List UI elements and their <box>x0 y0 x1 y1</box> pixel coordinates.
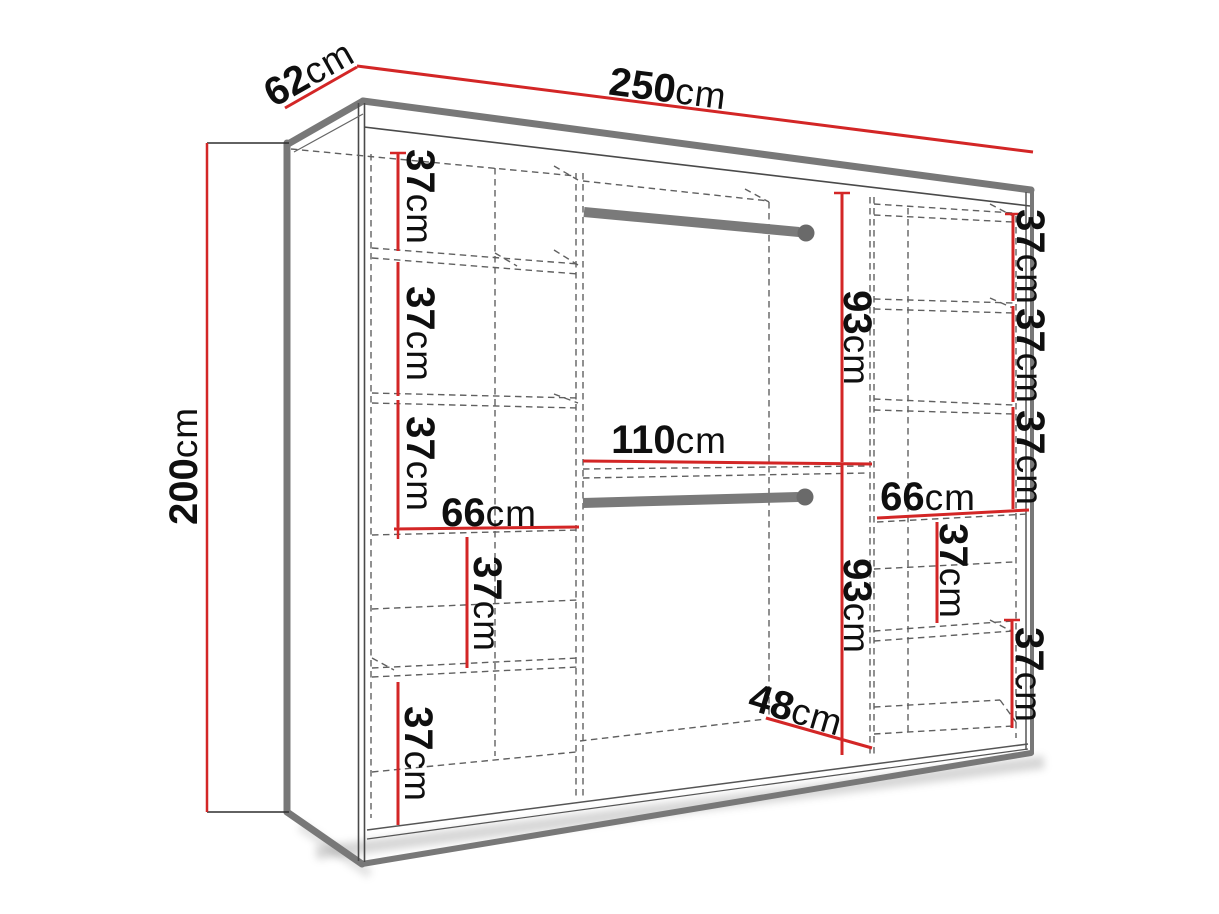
dim-label-right-37-2: 37cm <box>1010 308 1050 404</box>
dim-label-mid-93-lower: 93cm <box>837 558 877 654</box>
hanging-rod-lower-end-cap <box>797 489 814 506</box>
hanging-rod-upper-end-cap <box>798 225 815 242</box>
hanging-rod-lower <box>583 497 798 503</box>
height-extension-ticks <box>207 143 289 812</box>
dim-label-left-37-3: 37cm <box>400 416 440 512</box>
dim-label-right-66: 66cm <box>880 477 976 517</box>
dim-label-left-66: 66cm <box>441 493 537 533</box>
dim-label-mid-110: 110cm <box>611 420 727 460</box>
dim-label-right-37-4: 37cm <box>933 523 973 619</box>
dim-label-left-37-4: 37cm <box>467 556 507 652</box>
dim-label-right-37-3: 37cm <box>1010 410 1050 506</box>
dim-label-right-37-5: 37cm <box>1009 627 1049 723</box>
dim-label-left-37-2: 37cm <box>400 286 440 382</box>
diagram-canvas: 62cm 250cm 200cm 37cm 37cm 37cm 66cm 37c… <box>0 0 1219 914</box>
hanging-rod-upper <box>584 212 799 232</box>
dim-label-mid-93-upper: 93cm <box>837 290 877 386</box>
dim-label-left-37-5: 37cm <box>398 706 438 802</box>
dim-label-left-37-1: 37cm <box>400 149 440 245</box>
dim-label-right-37-1: 37cm <box>1010 209 1050 305</box>
dim-label-height-200: 200cm <box>164 407 204 525</box>
